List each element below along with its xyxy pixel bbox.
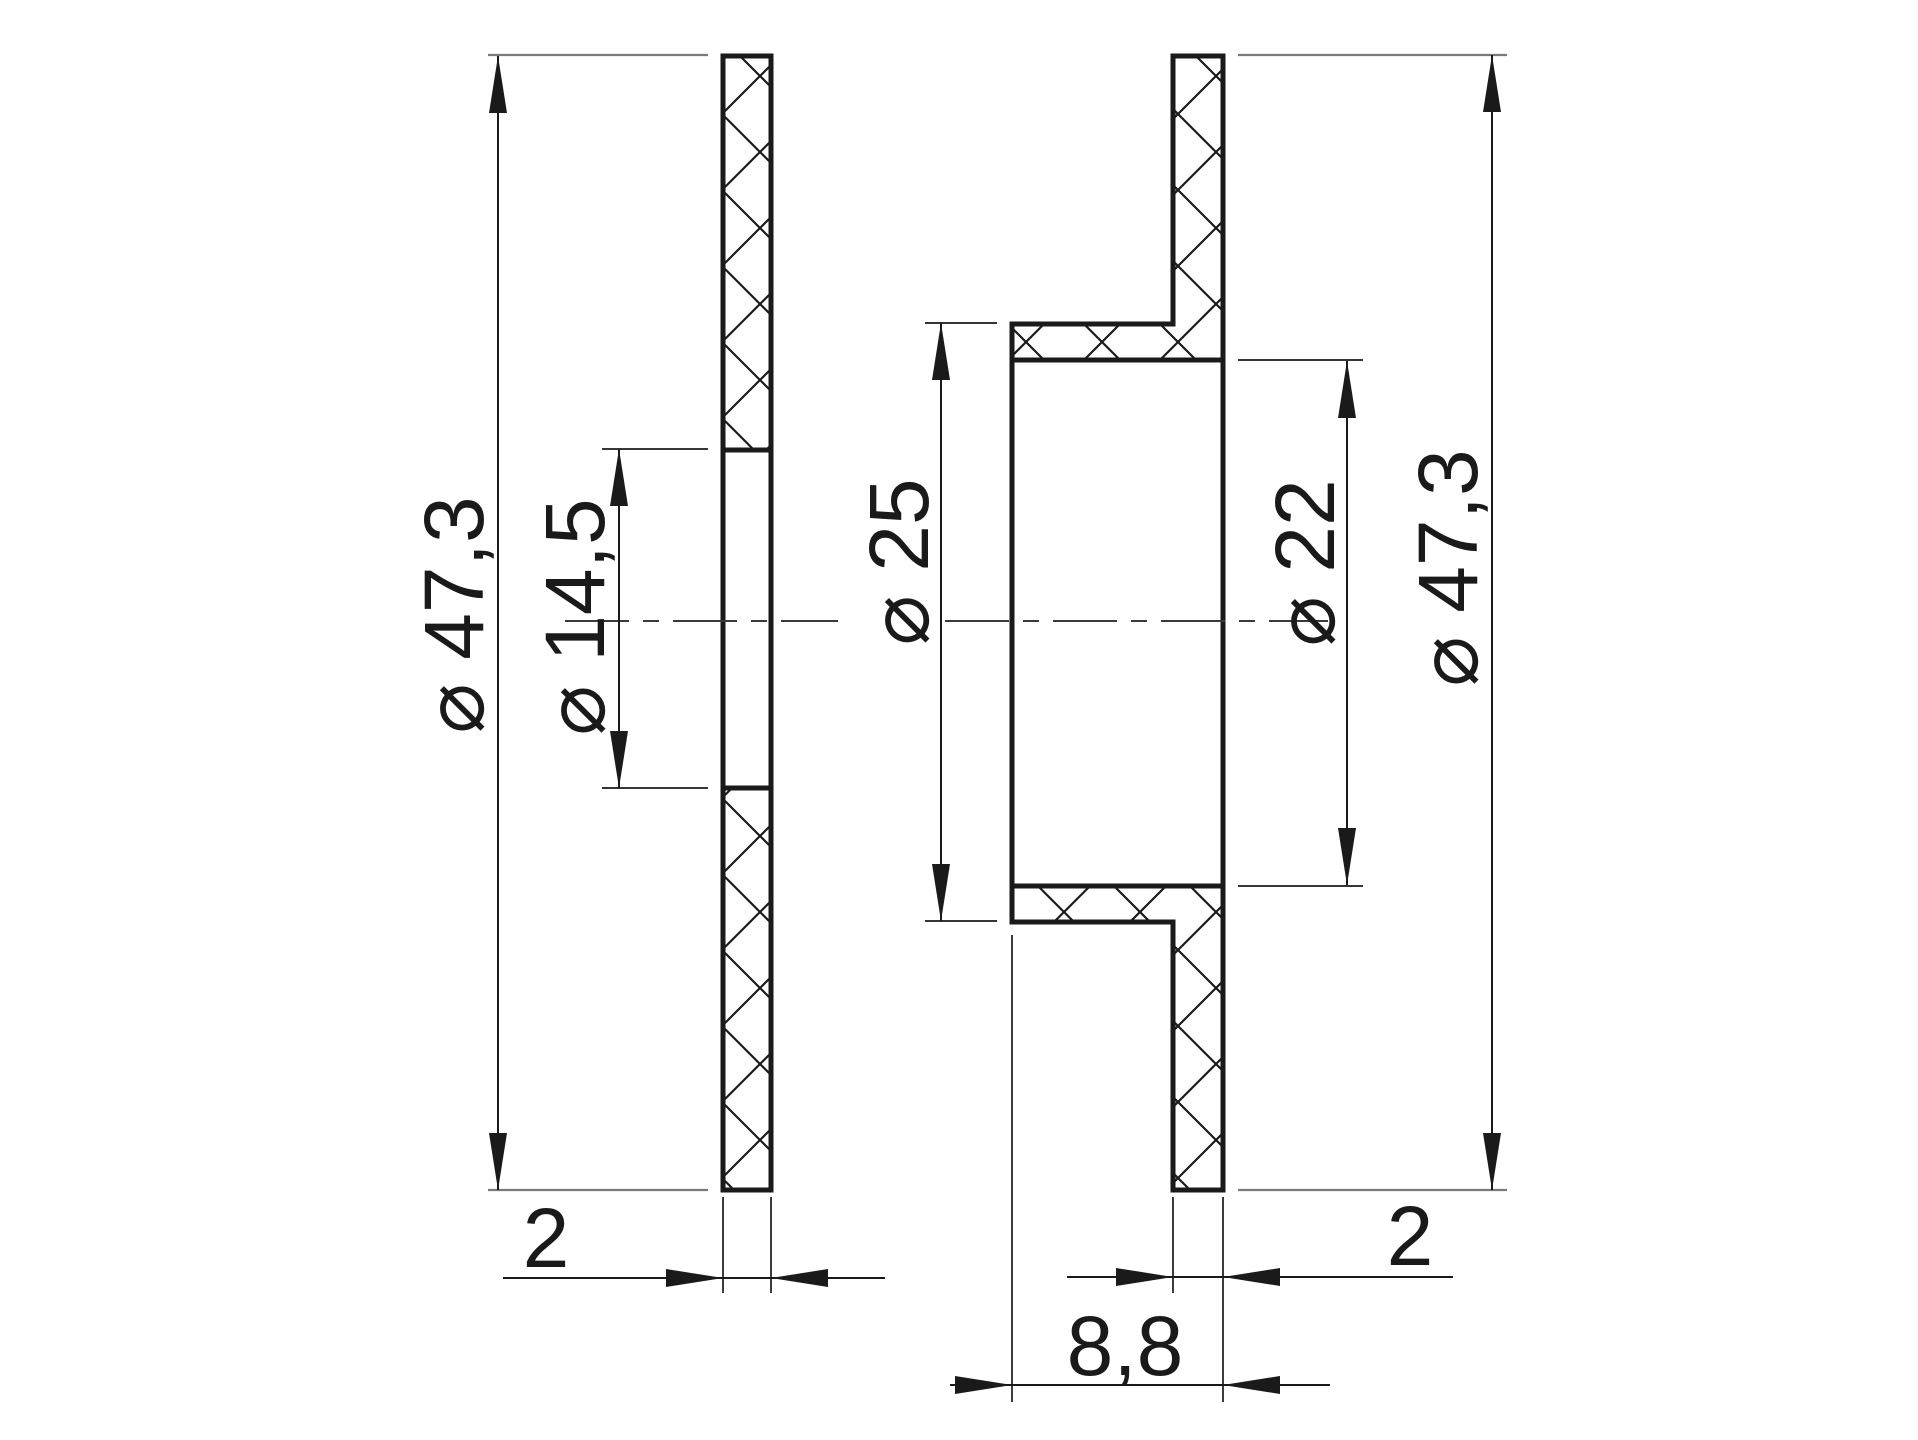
arrowhead: [1338, 361, 1356, 418]
arrowhead: [1223, 1268, 1280, 1286]
arrowhead: [666, 1269, 723, 1287]
left-view: ⌀ 47,3 ⌀ 14,5 2: [407, 55, 885, 1293]
washer-hatch-lower: [723, 788, 771, 1190]
arrowhead: [1116, 1268, 1173, 1286]
arrowhead: [489, 56, 507, 113]
arrowhead: [771, 1269, 828, 1287]
dim-left-thickness: 2: [503, 1191, 885, 1293]
technical-drawing-canvas: ⌀ 47,3 ⌀ 14,5 2: [0, 0, 1918, 1440]
dim-text-right-body-diameter: ⌀ 25: [852, 478, 946, 645]
right-view: ⌀ 25 ⌀ 22 ⌀ 47,3 2: [852, 55, 1507, 1402]
arrowhead: [489, 1133, 507, 1190]
arrowhead: [1338, 828, 1356, 885]
dim-text-left-outer-diameter: ⌀ 47,3: [407, 496, 501, 733]
dim-text-right-body-length: 8,8: [1067, 1299, 1184, 1393]
arrowhead: [1483, 1133, 1501, 1190]
arrowhead: [1223, 1376, 1280, 1394]
drawing-page: ⌀ 47,3 ⌀ 14,5 2: [0, 0, 1918, 1440]
arrowhead: [1483, 55, 1501, 112]
dim-right-body-length: 8,8: [950, 935, 1330, 1402]
washer-hatch-upper: [723, 56, 771, 450]
arrowhead: [610, 449, 628, 506]
dim-text-left-thickness: 2: [523, 1191, 570, 1285]
dim-text-right-flange-thickness: 2: [1387, 1189, 1434, 1283]
arrowhead: [932, 864, 950, 921]
dim-right-bore-diameter: ⌀ 22: [1238, 360, 1363, 886]
dim-left-bore-diameter: ⌀ 14,5: [528, 449, 708, 788]
dim-text-right-flange-diameter: ⌀ 47,3: [1401, 449, 1495, 686]
bushing-hatch-upper: [1012, 56, 1223, 360]
dim-text-right-bore-diameter: ⌀ 22: [1258, 479, 1352, 646]
arrowhead: [610, 731, 628, 788]
bushing-hatch-lower: [1012, 886, 1223, 1190]
arrowhead: [932, 323, 950, 380]
arrowhead: [955, 1376, 1012, 1394]
dim-text-left-bore-diameter: ⌀ 14,5: [528, 498, 622, 735]
